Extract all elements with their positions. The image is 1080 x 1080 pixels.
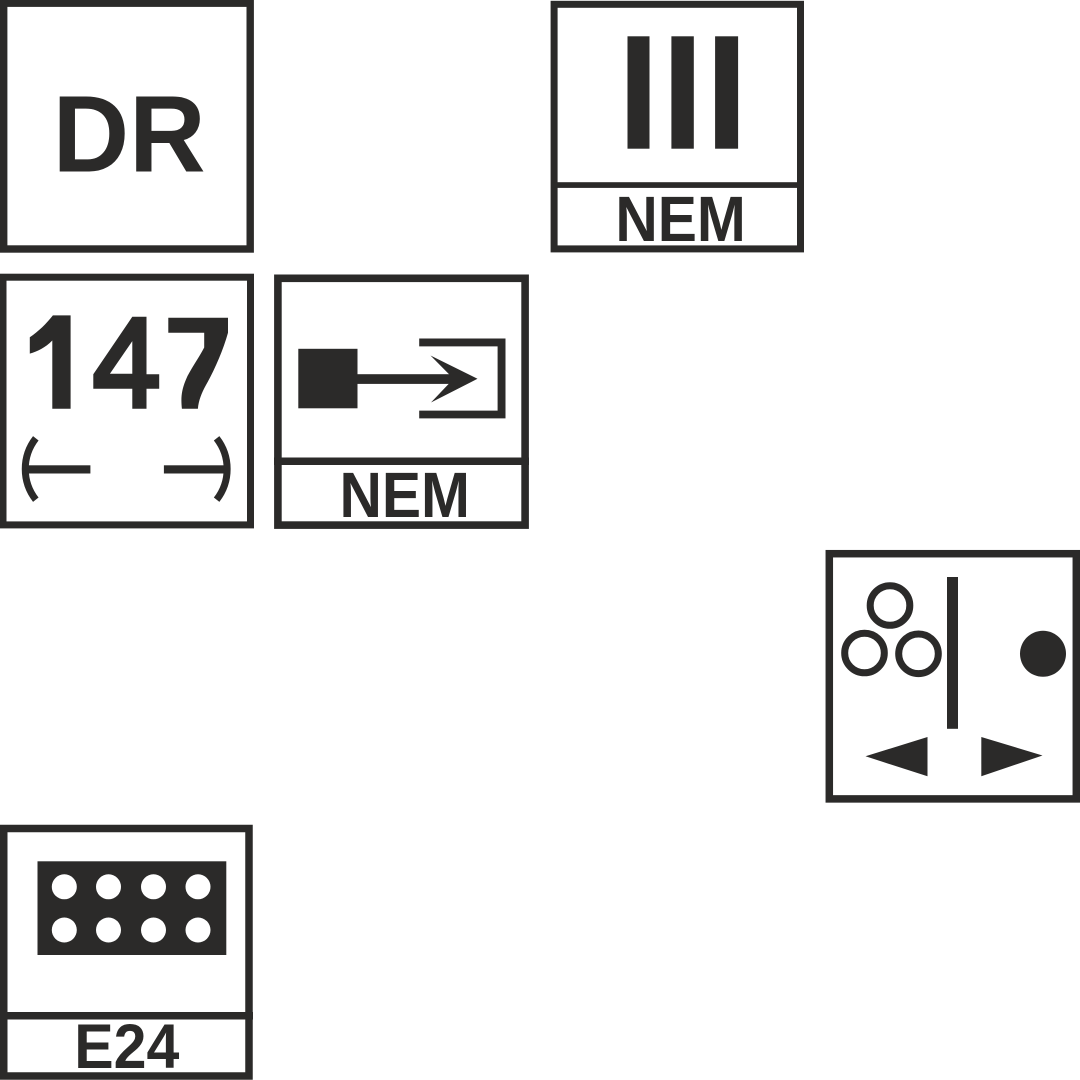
svg-text:E24: E24	[74, 1012, 179, 1080]
svg-text:DR: DR	[53, 73, 206, 195]
svg-text:NEM: NEM	[615, 183, 746, 255]
svg-text:NEM: NEM	[339, 459, 470, 531]
